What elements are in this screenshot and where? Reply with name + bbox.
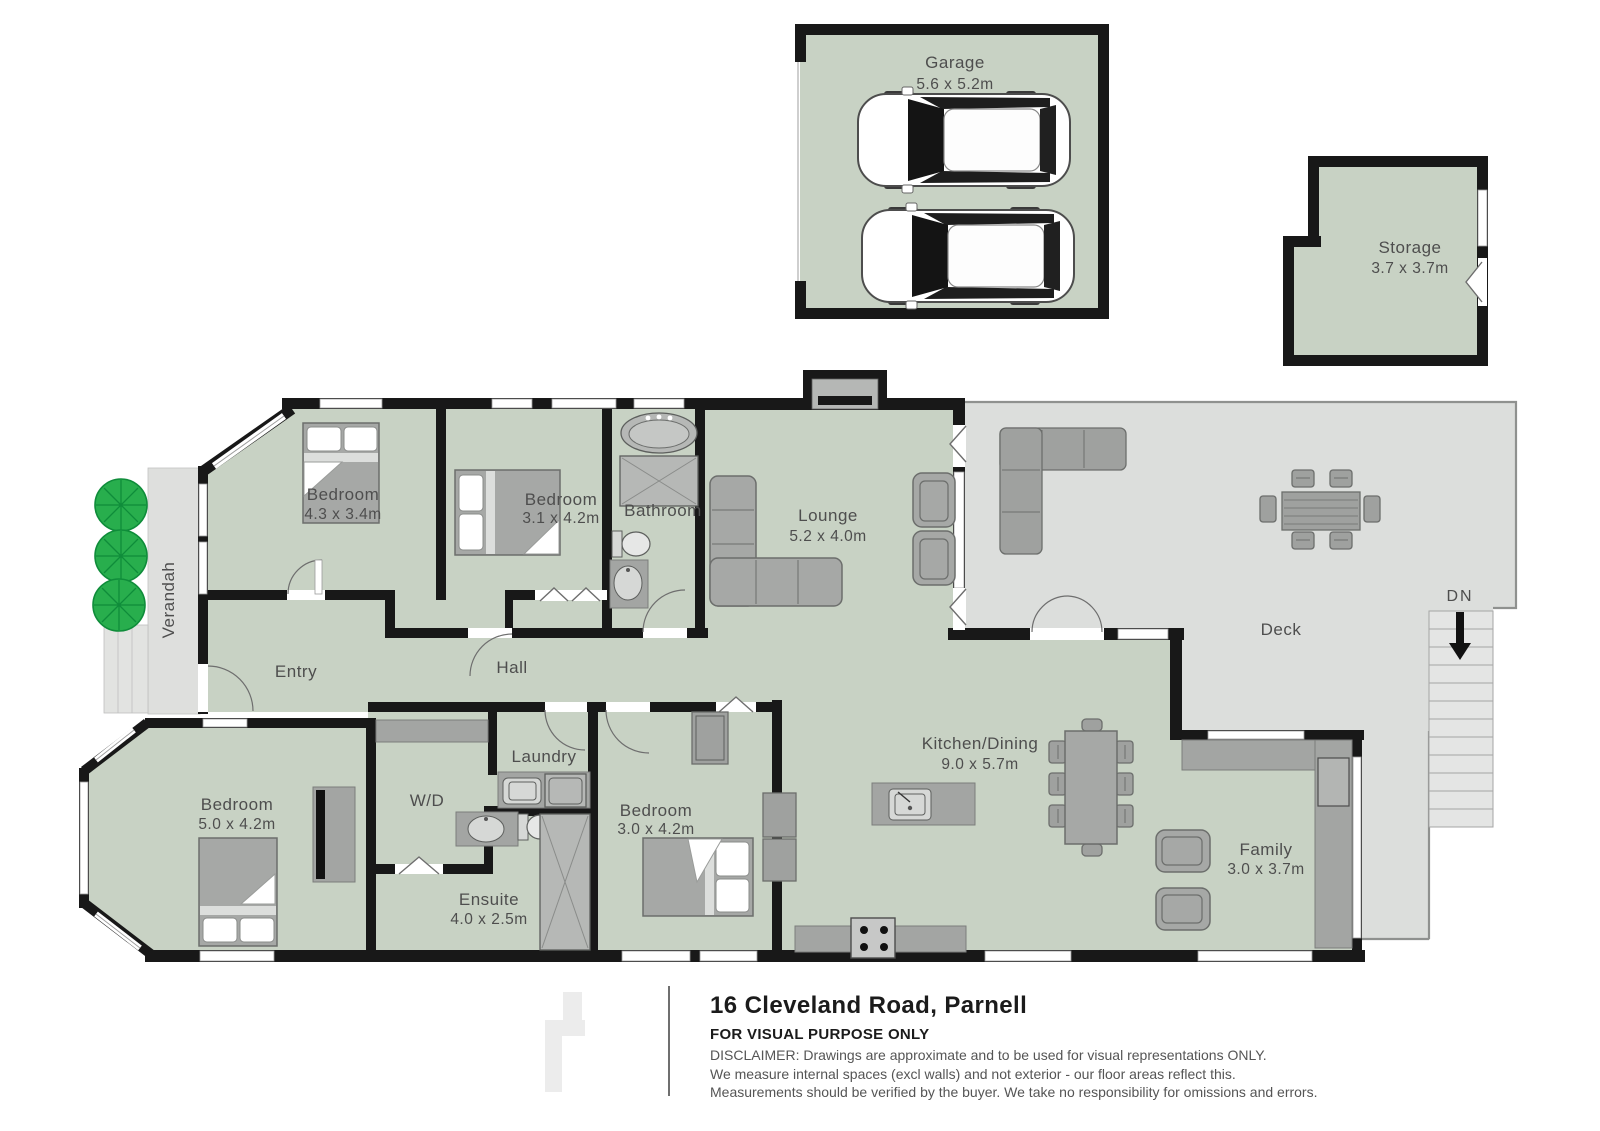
laundry-label: Laundry (512, 747, 577, 766)
footer-divider (668, 986, 670, 1096)
family-label: Family (1239, 840, 1292, 859)
hall-label: Hall (496, 658, 527, 677)
bathtub (621, 413, 697, 453)
double-bed (199, 838, 277, 946)
bedroom-mid-label: Bedroom (620, 801, 692, 820)
verandah-label: Verandah (159, 562, 178, 639)
bedroom-mid-dims: 3.0 x 4.2m (617, 821, 694, 838)
bedroom1-label: Bedroom (307, 485, 379, 504)
agency-logo (533, 988, 595, 1098)
ensuite-label: Ensuite (459, 890, 519, 909)
disclaimer-line: Measurements should be verified by the b… (710, 1083, 1390, 1102)
garage-dims: 5.6 x 5.2m (916, 76, 993, 93)
storage-dims: 3.7 x 3.7m (1371, 260, 1448, 277)
stairs-dn-label: DN (1446, 588, 1473, 605)
bedroom2-label: Bedroom (525, 490, 597, 509)
disclaimer-line: DISCLAIMER: Drawings are approximate and… (710, 1046, 1390, 1065)
deck-stairs (1429, 611, 1493, 827)
pantry-cupboard (763, 793, 796, 881)
garage-label: Garage (925, 53, 985, 72)
wardrobe (313, 787, 355, 882)
storage-label: Storage (1378, 238, 1441, 257)
lounge-dims: 5.2 x 4.0m (789, 528, 866, 545)
disclaimer-text: DISCLAIMER: Drawings are approximate and… (710, 1046, 1390, 1102)
shower (540, 814, 590, 950)
entry-label: Entry (275, 662, 317, 681)
fireplace (803, 370, 887, 410)
purpose-note: FOR VISUAL PURPOSE ONLY (710, 1026, 929, 1043)
tree-icon (93, 479, 147, 631)
fridge (692, 712, 728, 764)
bedroom2-dims: 3.1 x 4.2m (522, 510, 599, 527)
kitchen-dims: 9.0 x 5.7m (941, 756, 1018, 773)
ensuite-dims: 4.0 x 2.5m (450, 911, 527, 928)
bathroom-label: Bathroom (624, 501, 702, 520)
wd-shelf (376, 720, 488, 742)
kitchen-island (872, 783, 975, 825)
bedroom1-dims: 4.3 x 3.4m (304, 506, 381, 523)
laundry-bench (498, 772, 590, 808)
kitchen-label: Kitchen/Dining (922, 734, 1039, 753)
floorplan-canvas: Garage 5.6 x 5.2m Storage 3.7 x 3.7m Bed… (0, 0, 1600, 1131)
shower (620, 456, 698, 506)
floorplan-page: Garage 5.6 x 5.2m Storage 3.7 x 3.7m Bed… (0, 0, 1600, 1131)
disclaimer-line: We measure internal spaces (excl walls) … (710, 1065, 1390, 1084)
deck-label: Deck (1261, 620, 1302, 639)
ensuite-vanity (456, 812, 518, 846)
bathroom-sink (610, 560, 648, 608)
double-bed (643, 838, 753, 916)
lounge-label: Lounge (798, 506, 858, 525)
toilet (612, 531, 650, 557)
page-title: 16 Cleveland Road, Parnell (710, 992, 1027, 1020)
wd-label: W/D (410, 791, 445, 810)
bedroom-front-dims: 5.0 x 4.2m (198, 816, 275, 833)
family-dims: 3.0 x 3.7m (1227, 861, 1304, 878)
bedroom-front-label: Bedroom (201, 795, 273, 814)
